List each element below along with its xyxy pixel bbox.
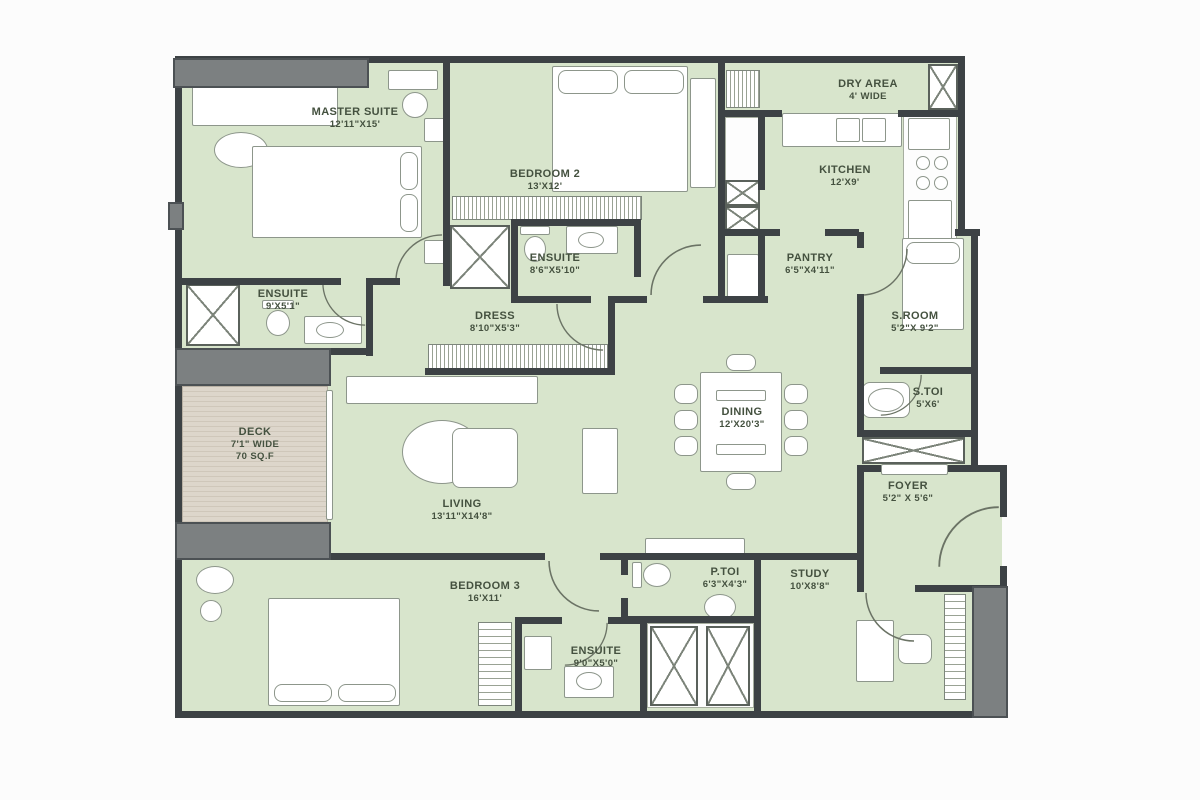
- pillow: [558, 70, 618, 94]
- toilet-tank-icon: [632, 562, 642, 588]
- pillow: [906, 242, 960, 264]
- door-arc: [865, 592, 915, 642]
- wall: [600, 553, 857, 560]
- wardrobe-x-icon: [862, 437, 965, 464]
- wall: [1000, 465, 1007, 517]
- dining-chair: [784, 436, 808, 456]
- coffee-table: [452, 428, 518, 488]
- wardrobe-study: [944, 594, 966, 700]
- room-label-bedroom2: BEDROOM 2 13'X12': [465, 168, 625, 193]
- wall: [515, 617, 522, 712]
- armchair: [582, 428, 618, 494]
- room-label-study: STUDY 10'X8'8": [750, 568, 870, 593]
- toilet-tank-icon: [520, 226, 550, 235]
- room-label-dry-area: DRY AREA 4' WIDE: [798, 78, 938, 103]
- wall: [634, 219, 641, 277]
- shaft-x-icon: [706, 626, 750, 706]
- wall: [758, 112, 765, 190]
- wall: [703, 296, 725, 303]
- shaft-x-icon: [650, 626, 698, 706]
- refrigerator: [908, 118, 950, 150]
- room-label-ensuite-master: ENSUITE 9'X5'1": [223, 288, 343, 313]
- wall: [825, 229, 859, 236]
- wall: [511, 219, 641, 226]
- door-arc: [556, 303, 604, 351]
- washbasin-icon: [576, 672, 602, 690]
- room-label-kitchen: KITCHEN 12'X9': [775, 164, 915, 189]
- room-label-s-toi: S.TOI 5'X6': [888, 386, 968, 411]
- room-label-living: LIVING 13'11"X14'8": [382, 498, 542, 523]
- entry-door-arc: [938, 506, 1000, 568]
- room-label-foyer: FOYER 5'2" X 5'6": [848, 480, 968, 505]
- bedroom2-wardrobe: [690, 78, 716, 188]
- wall: [330, 348, 373, 355]
- wall: [608, 296, 615, 375]
- table-detail: [716, 390, 766, 401]
- deck-sliding-door: [326, 390, 333, 520]
- kitchen-sink-icon: [862, 118, 886, 142]
- wall: [880, 367, 972, 374]
- hob-burner-icon: [934, 176, 948, 190]
- kitchen-sink-icon: [836, 118, 860, 142]
- table-detail: [716, 444, 766, 455]
- hob-burner-icon: [916, 176, 930, 190]
- pillow: [400, 194, 418, 232]
- deck-lower-slab: [175, 522, 331, 560]
- toilet-icon: [266, 310, 290, 336]
- shower-icon: [450, 225, 510, 289]
- master-bed: [252, 146, 422, 238]
- pillow: [400, 152, 418, 190]
- wall: [857, 465, 881, 472]
- hob-burner-icon: [916, 156, 930, 170]
- dining-chair: [726, 354, 756, 371]
- dining-chair: [674, 436, 698, 456]
- shoe-cabinet: [881, 464, 948, 475]
- wall: [443, 56, 450, 286]
- room-label-master-suite: MASTER SUITE 12'11"X15': [275, 106, 435, 131]
- room-label-ensuite-bedroom3: ENSUITE 9'0"X5'0": [546, 645, 646, 670]
- wall: [718, 62, 725, 303]
- side-table: [200, 600, 222, 622]
- wall: [366, 278, 400, 285]
- wall: [175, 56, 182, 718]
- dining-chair: [784, 384, 808, 404]
- dresser: [388, 70, 438, 90]
- wall: [511, 296, 591, 303]
- dry-area-unit: [726, 70, 760, 108]
- wall: [948, 465, 1007, 472]
- wardrobe-bedroom2: [452, 196, 642, 220]
- room-label-dress: DRESS 8'10"X5'3": [435, 310, 555, 335]
- room-label-dining: DINING 12'X20'3": [682, 406, 802, 431]
- wardrobe-bedroom3: [478, 622, 512, 706]
- pillow: [624, 70, 684, 94]
- door-arc: [395, 234, 443, 282]
- wall: [718, 110, 782, 117]
- toilet-icon: [643, 563, 671, 587]
- wall: [515, 617, 562, 624]
- room-label-pantry: PANTRY 6'5"X4'11": [750, 252, 870, 277]
- room-label-ensuite-bedroom2: ENSUITE 8'6"X5'10": [505, 252, 605, 277]
- pillow: [274, 684, 332, 702]
- floor-plan: MASTER SUITE 12'11"X15' BEDROOM 2 13'X12…: [0, 0, 1200, 800]
- wall: [898, 110, 962, 117]
- room-label-s-room: S.ROOM 5'2"X 9'2": [855, 310, 975, 335]
- shaft-x-icon: [725, 180, 760, 206]
- dining-chair: [674, 384, 698, 404]
- pillow: [338, 684, 396, 702]
- dining-chair: [726, 473, 756, 490]
- door-arc: [650, 244, 702, 296]
- study-side-slab: [972, 586, 1008, 718]
- wall: [366, 278, 373, 356]
- wall: [621, 598, 628, 618]
- hob-burner-icon: [934, 156, 948, 170]
- wall: [175, 711, 1008, 718]
- room-label-deck: DECK 7'1" WIDE 70 SQ.F: [195, 426, 315, 462]
- wall-pier: [168, 202, 184, 230]
- balcony-slab: [173, 58, 369, 88]
- wall: [181, 278, 341, 285]
- wall: [722, 229, 780, 236]
- lounge-chair: [196, 566, 234, 594]
- washbasin-icon: [578, 232, 604, 248]
- wall: [621, 553, 628, 575]
- wall: [857, 430, 975, 437]
- wall: [425, 368, 615, 375]
- living-sofa: [346, 376, 538, 404]
- wall: [611, 296, 647, 303]
- room-label-bedroom3: BEDROOM 3 16'X11': [405, 580, 565, 605]
- deck-upper-slab: [175, 348, 331, 386]
- wall: [958, 56, 965, 236]
